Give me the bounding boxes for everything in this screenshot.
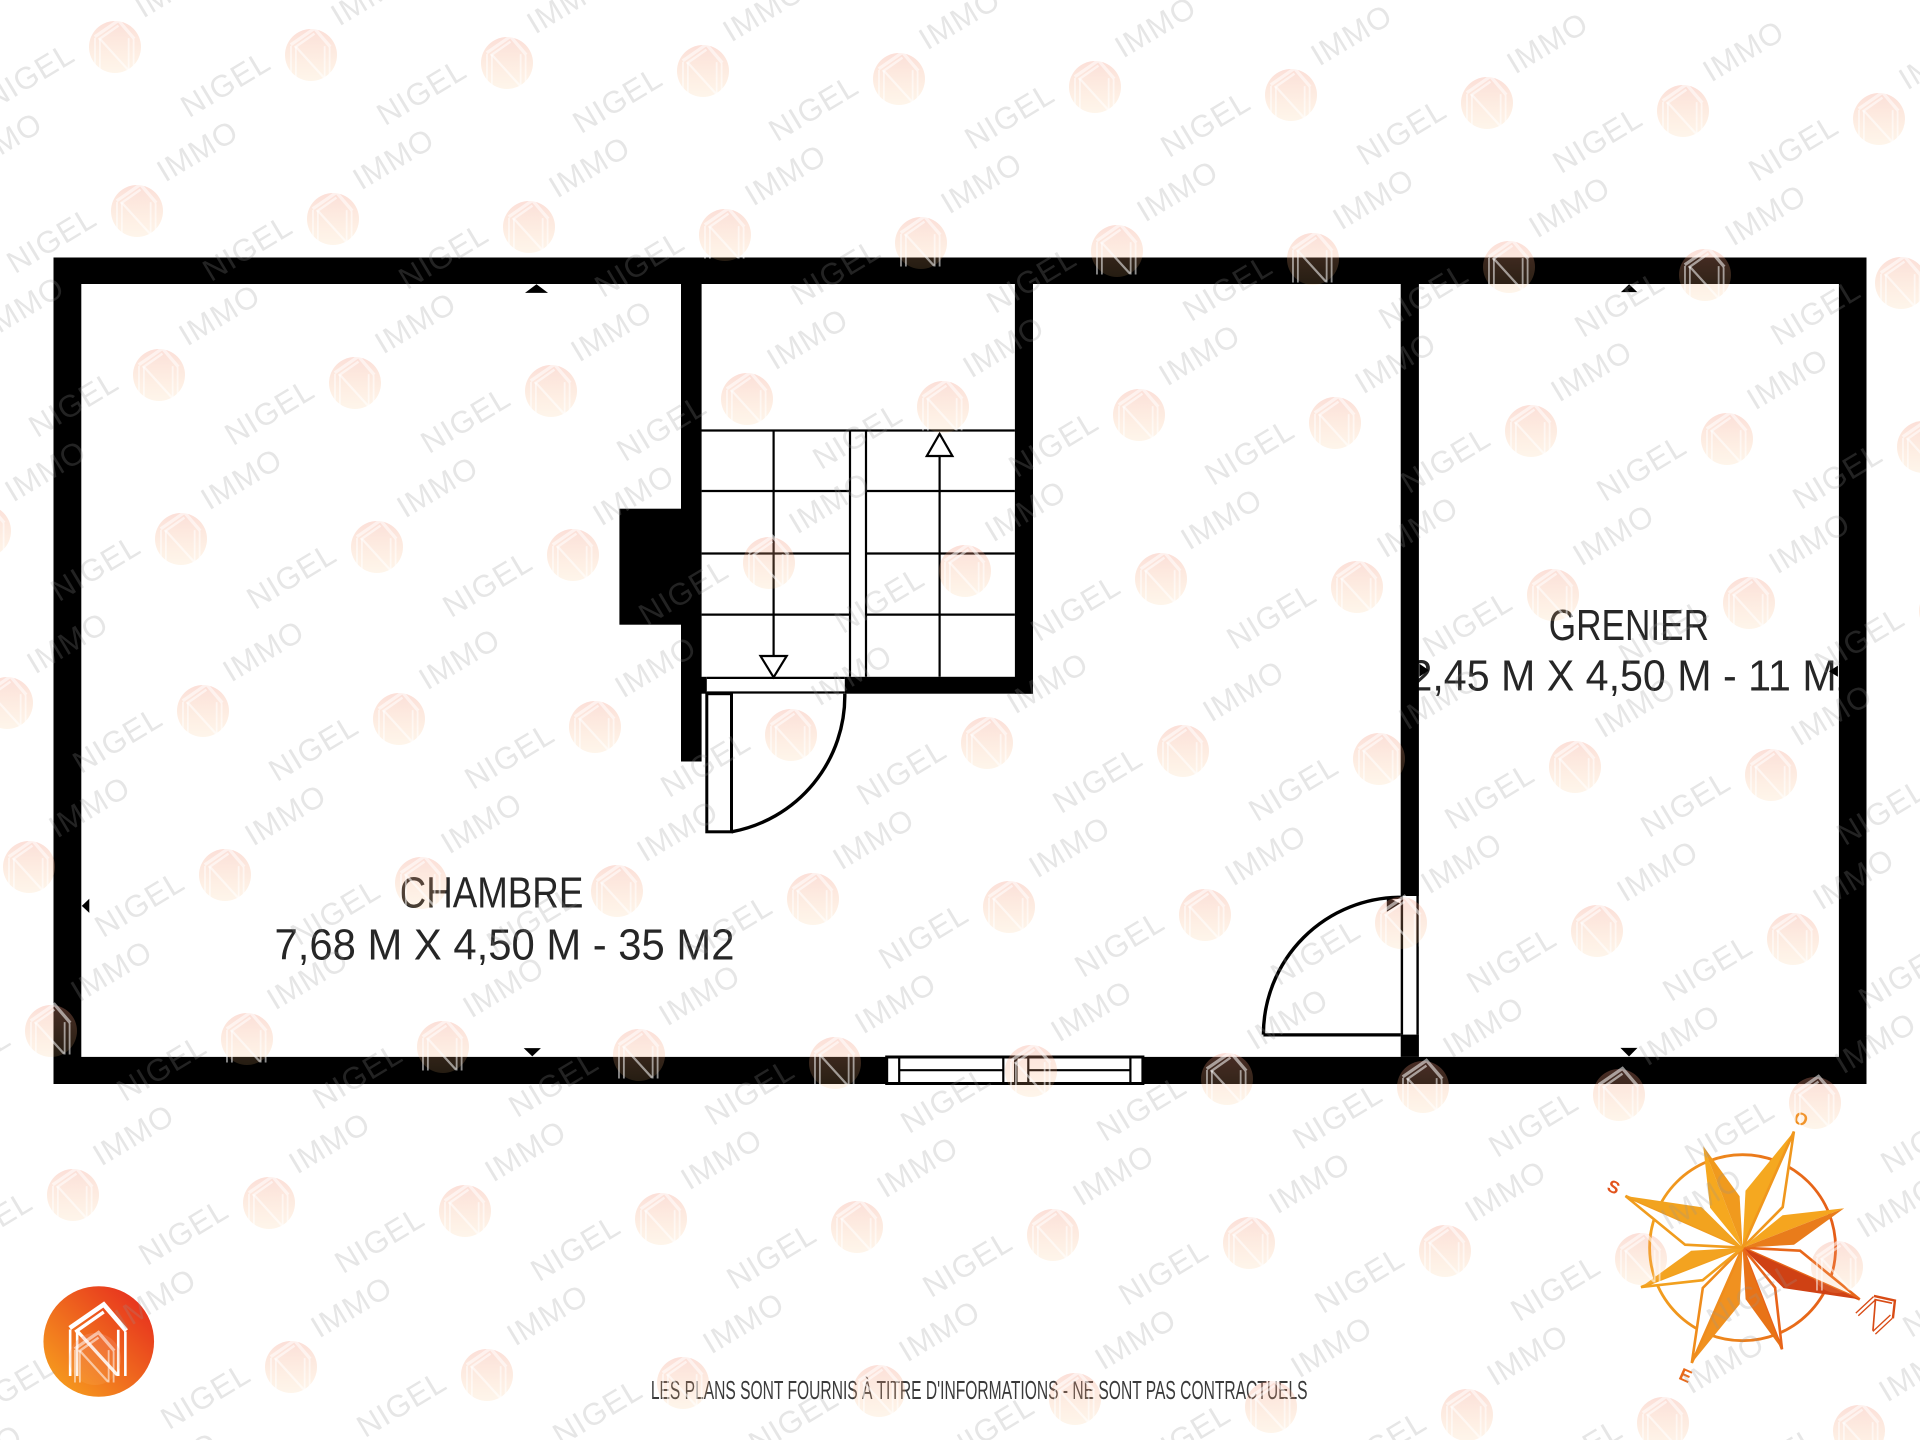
svg-text:IMMO: IMMO <box>565 293 659 369</box>
svg-text:NIGEL: NIGEL <box>371 52 473 132</box>
svg-text:NIGEL: NIGEL <box>329 1200 431 1280</box>
svg-text:IMMO: IMMO <box>1241 981 1335 1057</box>
svg-text:IMMO: IMMO <box>1327 161 1421 237</box>
svg-text:IMMO: IMMO <box>1197 653 1291 729</box>
svg-text:NIGEL: NIGEL <box>1047 740 1149 820</box>
svg-text:IMMO: IMMO <box>1523 169 1617 245</box>
svg-text:IMMO: IMMO <box>87 1097 181 1173</box>
svg-text:NIGEL: NIGEL <box>155 1356 257 1436</box>
svg-text:NIGEL: NIGEL <box>1265 912 1367 992</box>
svg-text:NIGEL: NIGEL <box>351 1364 453 1440</box>
svg-text:IMMO: IMMO <box>347 121 441 197</box>
svg-text:NIGEL: NIGEL <box>1635 764 1737 844</box>
svg-text:NIGEL: NIGEL <box>437 544 539 624</box>
svg-text:IMMO: IMMO <box>109 1261 203 1337</box>
svg-text:NIGEL: NIGEL <box>1287 1076 1389 1156</box>
svg-text:IMMO: IMMO <box>1719 177 1813 253</box>
svg-text:NIGEL: NIGEL <box>959 76 1061 156</box>
svg-text:IMMO: IMMO <box>675 1121 769 1197</box>
svg-text:IMMO: IMMO <box>1415 825 1509 901</box>
svg-text:IMMO: IMMO <box>0 0 26 17</box>
svg-text:NIGEL: NIGEL <box>567 60 669 140</box>
svg-text:NIGEL: NIGEL <box>263 708 365 788</box>
svg-text:IMMO: IMMO <box>913 0 1007 57</box>
svg-text:NIGEL: NIGEL <box>721 1216 823 1296</box>
svg-text:NIGEL: NIGEL <box>1351 92 1453 172</box>
svg-text:IMMO: IMMO <box>283 1105 377 1181</box>
svg-text:IMMO: IMMO <box>1915 185 1920 261</box>
svg-text:IMMO: IMMO <box>0 105 48 181</box>
svg-text:IMMO: IMMO <box>479 1113 573 1189</box>
svg-text:IMMO: IMMO <box>1263 1145 1357 1221</box>
svg-text:IMMO: IMMO <box>1001 645 1095 721</box>
svg-text:IMMO: IMMO <box>501 1277 595 1353</box>
svg-text:NIGEL: NIGEL <box>1679 1092 1781 1172</box>
svg-text:NIGEL: NIGEL <box>1527 1412 1629 1440</box>
svg-text:IMMO: IMMO <box>631 793 725 869</box>
svg-text:IMMO: IMMO <box>521 0 615 41</box>
svg-text:IMMO: IMMO <box>783 465 877 541</box>
svg-text:NIGEL: NIGEL <box>0 1020 17 1100</box>
svg-text:NIGEL: NIGEL <box>415 380 517 460</box>
svg-text:NIGEL: NIGEL <box>917 1224 1019 1304</box>
svg-text:IMMO: IMMO <box>239 777 333 853</box>
svg-text:NIGEL: NIGEL <box>851 732 953 812</box>
svg-text:NIGEL: NIGEL <box>873 896 975 976</box>
svg-text:NIGEL: NIGEL <box>1461 920 1563 1000</box>
svg-text:IMMO: IMMO <box>1893 21 1920 97</box>
svg-text:NIGEL: NIGEL <box>175 44 277 124</box>
svg-text:IMMO: IMMO <box>1067 1137 1161 1213</box>
svg-text:IMMO: IMMO <box>739 137 833 213</box>
svg-text:IMMO: IMMO <box>761 301 855 377</box>
svg-text:NIGEL: NIGEL <box>1547 100 1649 180</box>
svg-text:IMMO: IMMO <box>413 621 507 697</box>
svg-text:NIGEL: NIGEL <box>219 372 321 452</box>
svg-text:IMMO: IMMO <box>195 441 289 517</box>
svg-text:IMMO: IMMO <box>391 449 485 525</box>
svg-text:IMMO: IMMO <box>1349 325 1443 401</box>
svg-text:IMMO: IMMO <box>543 129 637 205</box>
svg-text:NIGEL: NIGEL <box>0 1184 39 1264</box>
svg-text:IMMO: IMMO <box>435 785 529 861</box>
svg-text:NIGEL: NIGEL <box>829 560 931 640</box>
svg-text:IMMO: IMMO <box>305 1269 399 1345</box>
svg-text:IMMO: IMMO <box>173 277 267 353</box>
svg-text:IMMO: IMMO <box>0 1417 28 1440</box>
svg-text:IMMO: IMMO <box>217 613 311 689</box>
svg-text:IMMO: IMMO <box>1285 1309 1379 1385</box>
svg-text:NIGEL: NIGEL <box>1243 748 1345 828</box>
svg-text:NIGEL: NIGEL <box>1657 928 1759 1008</box>
svg-text:NIGEL: NIGEL <box>1875 1100 1920 1180</box>
svg-text:NIGEL: NIGEL <box>0 36 81 116</box>
svg-text:NIGEL: NIGEL <box>1723 1420 1825 1440</box>
svg-text:NIGEL: NIGEL <box>67 700 169 780</box>
svg-text:S: S <box>1604 1175 1623 1198</box>
svg-text:IMMO: IMMO <box>1741 341 1835 417</box>
svg-text:NIGEL: NIGEL <box>89 864 191 944</box>
svg-text:IMMO: IMMO <box>151 113 245 189</box>
svg-text:IMMO: IMMO <box>0 1253 6 1329</box>
svg-text:NIGEL: NIGEL <box>1483 1084 1585 1164</box>
svg-text:IMMO: IMMO <box>1045 973 1139 1049</box>
svg-text:NIGEL: NIGEL <box>459 716 561 796</box>
svg-text:NIGEL: NIGEL <box>133 1192 235 1272</box>
svg-text:IMMO: IMMO <box>935 145 1029 221</box>
svg-text:IMMO: IMMO <box>717 0 811 49</box>
svg-text:IMMO: IMMO <box>1219 817 1313 893</box>
svg-text:IMMO: IMMO <box>1873 1333 1920 1409</box>
svg-text:NIGEL: NIGEL <box>1897 1264 1920 1344</box>
svg-text:IMMO: IMMO <box>871 1129 965 1205</box>
svg-text:IMMO: IMMO <box>697 1285 791 1361</box>
svg-text:IMMO: IMMO <box>1459 1153 1553 1229</box>
svg-text:IMMO: IMMO <box>1153 317 1247 393</box>
svg-text:NIGEL: NIGEL <box>1069 904 1171 984</box>
svg-text:IMMO: IMMO <box>827 801 921 877</box>
svg-text:IMMO: IMMO <box>1089 1301 1183 1377</box>
svg-text:NIGEL: NIGEL <box>1331 1404 1433 1440</box>
svg-text:IMMO: IMMO <box>1697 13 1791 89</box>
svg-text:IMMO: IMMO <box>369 285 463 361</box>
svg-text:NIGEL: NIGEL <box>1199 412 1301 492</box>
svg-text:NIGEL: NIGEL <box>393 216 495 296</box>
svg-text:NIGEL: NIGEL <box>807 396 909 476</box>
svg-text:NIGEL: NIGEL <box>241 536 343 616</box>
svg-text:IMMO: IMMO <box>805 637 899 713</box>
svg-text:NIGEL: NIGEL <box>1743 108 1845 188</box>
svg-text:NIGEL: NIGEL <box>1113 1232 1215 1312</box>
svg-text:IMMO: IMMO <box>1567 497 1661 573</box>
svg-text:NIGEL: NIGEL <box>1155 84 1257 164</box>
svg-text:NIGEL: NIGEL <box>1505 1248 1607 1328</box>
svg-text:IMMO: IMMO <box>1131 153 1225 229</box>
svg-text:IMMO: IMMO <box>129 0 223 25</box>
svg-text:IMMO: IMMO <box>1545 333 1639 409</box>
svg-text:IMMO: IMMO <box>1175 481 1269 557</box>
svg-text:NIGEL: NIGEL <box>1591 428 1693 508</box>
svg-text:IMMO: IMMO <box>1109 0 1203 65</box>
svg-text:NIGEL: NIGEL <box>763 68 865 148</box>
svg-text:NIGEL: NIGEL <box>1309 1240 1411 1320</box>
svg-text:NIGEL: NIGEL <box>1439 756 1541 836</box>
svg-text:IMMO: IMMO <box>1437 989 1531 1065</box>
svg-text:IMMO: IMMO <box>1611 833 1705 909</box>
svg-text:NIGEL: NIGEL <box>547 1372 649 1440</box>
svg-text:IMMO: IMMO <box>893 1293 987 1369</box>
svg-text:IMMO: IMMO <box>1481 1317 1575 1393</box>
svg-text:NIGEL: NIGEL <box>1787 436 1889 516</box>
svg-text:IMMO: IMMO <box>1501 5 1595 81</box>
svg-text:IMMO: IMMO <box>849 965 943 1041</box>
svg-text:IMMO: IMMO <box>1023 809 1117 885</box>
svg-text:NIGEL: NIGEL <box>1025 568 1127 648</box>
svg-text:NIGEL: NIGEL <box>1221 576 1323 656</box>
svg-text:IMMO: IMMO <box>1851 1169 1920 1245</box>
svg-text:IMMO: IMMO <box>325 0 419 33</box>
svg-text:IMMO: IMMO <box>1305 0 1399 73</box>
svg-text:IMMO: IMMO <box>1677 1325 1771 1401</box>
svg-text:NIGEL: NIGEL <box>525 1208 627 1288</box>
svg-text:IMMO: IMMO <box>957 309 1051 385</box>
